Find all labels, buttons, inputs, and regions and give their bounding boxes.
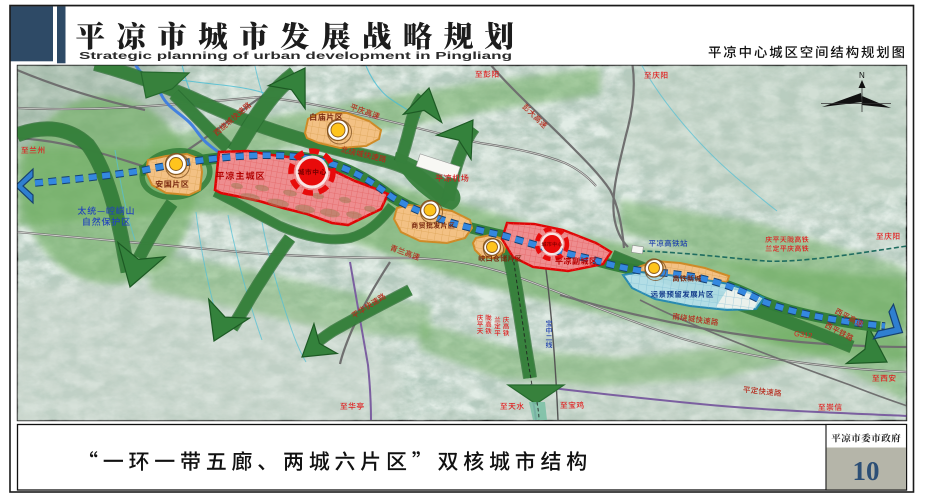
svg-text:N: N	[859, 71, 865, 80]
svg-text:10: 10	[853, 456, 880, 486]
svg-text:Strategic planning of urban de: Strategic planning of urban development …	[79, 50, 512, 62]
